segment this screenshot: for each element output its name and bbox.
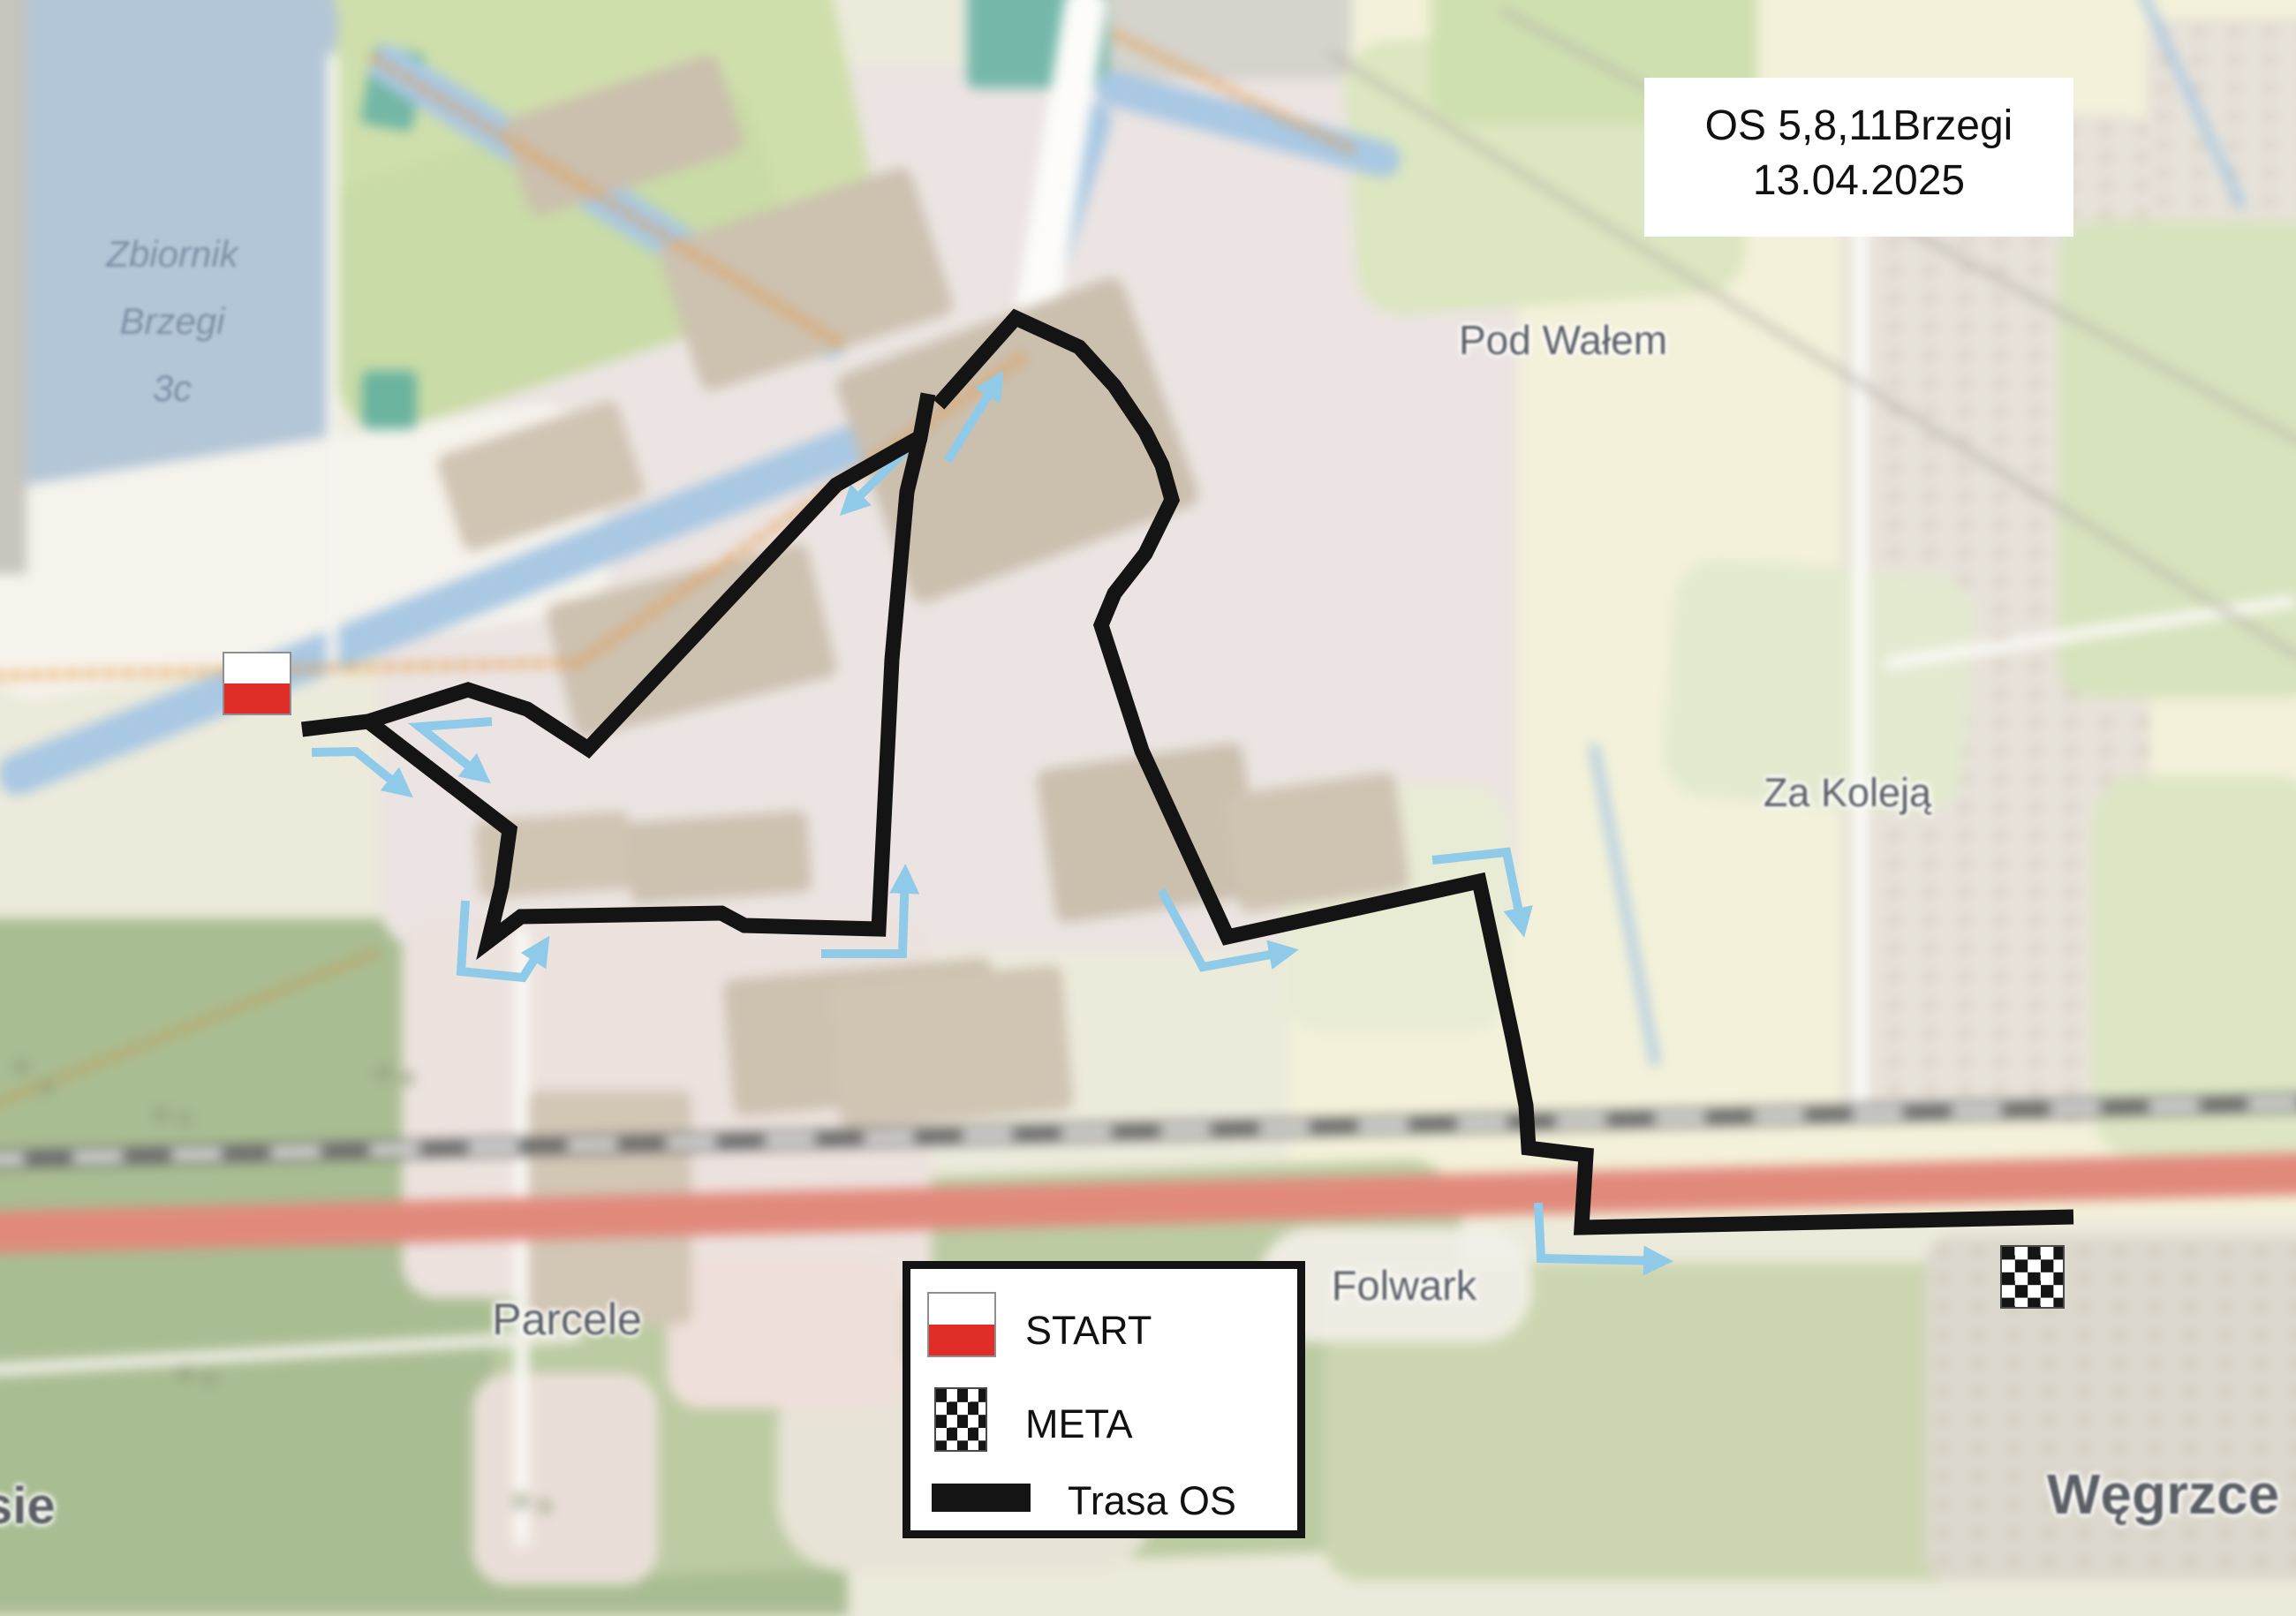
legend-box: START META Trasa OS: [903, 1261, 1305, 1538]
direction-arrow: [312, 751, 406, 792]
route-segment: [939, 318, 2073, 1227]
start-flag-icon: [223, 652, 291, 715]
meta-checkered-flag-icon: [2000, 1245, 2065, 1309]
stage-title-box: OS 5,8,11Brzegi 13.04.2025: [1644, 78, 2073, 237]
legend-meta-flag-icon: [934, 1387, 987, 1452]
legend-trasa-label: Trasa OS: [1068, 1478, 1236, 1524]
legend-start-label: START: [1025, 1308, 1152, 1354]
stage-date: 13.04.2025: [1644, 154, 2073, 208]
legend-route-line-icon: [932, 1484, 1031, 1512]
direction-arrow: [821, 872, 905, 954]
stage-title: OS 5,8,11Brzegi: [1644, 99, 2073, 154]
legend-meta-label: META: [1025, 1401, 1133, 1447]
legend-start-flag-icon: [927, 1292, 996, 1357]
map-canvas: Zbiornik Brzegi 3c Pod Wałem Za Koleją P…: [0, 0, 2296, 1541]
route-segment: [302, 394, 928, 749]
